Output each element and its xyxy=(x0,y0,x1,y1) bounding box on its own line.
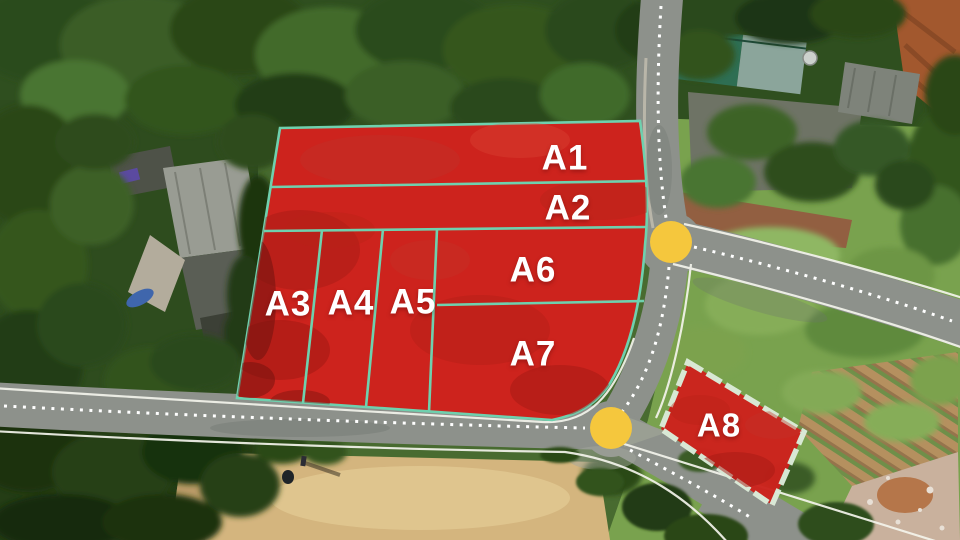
aerial-photo-canvas: A1 A2 A3 A4 A5 A6 A7 A8 xyxy=(0,0,960,540)
junction-marker-north xyxy=(650,221,692,263)
plot-label-a4: A4 xyxy=(328,284,375,323)
plot-label-a5: A5 xyxy=(390,283,437,322)
plot-label-a7: A7 xyxy=(510,335,557,374)
plot-label-a2: A2 xyxy=(545,189,592,228)
plot-label-a1: A1 xyxy=(542,139,589,178)
aerial-plot-map: A1 A2 A3 A4 A5 A6 A7 A8 xyxy=(0,0,960,540)
rubble-dirt-patch xyxy=(877,477,933,513)
junction-marker-south xyxy=(590,407,632,449)
plot-label-a8: A8 xyxy=(697,407,741,444)
water-tank xyxy=(803,51,817,65)
road-wear-patch xyxy=(646,125,672,215)
road-wear-patch xyxy=(210,419,390,437)
plot-label-a6: A6 xyxy=(510,251,557,290)
plot-label-a3: A3 xyxy=(265,285,312,324)
dry-field-highlight xyxy=(270,466,570,530)
dark-object xyxy=(282,470,294,484)
